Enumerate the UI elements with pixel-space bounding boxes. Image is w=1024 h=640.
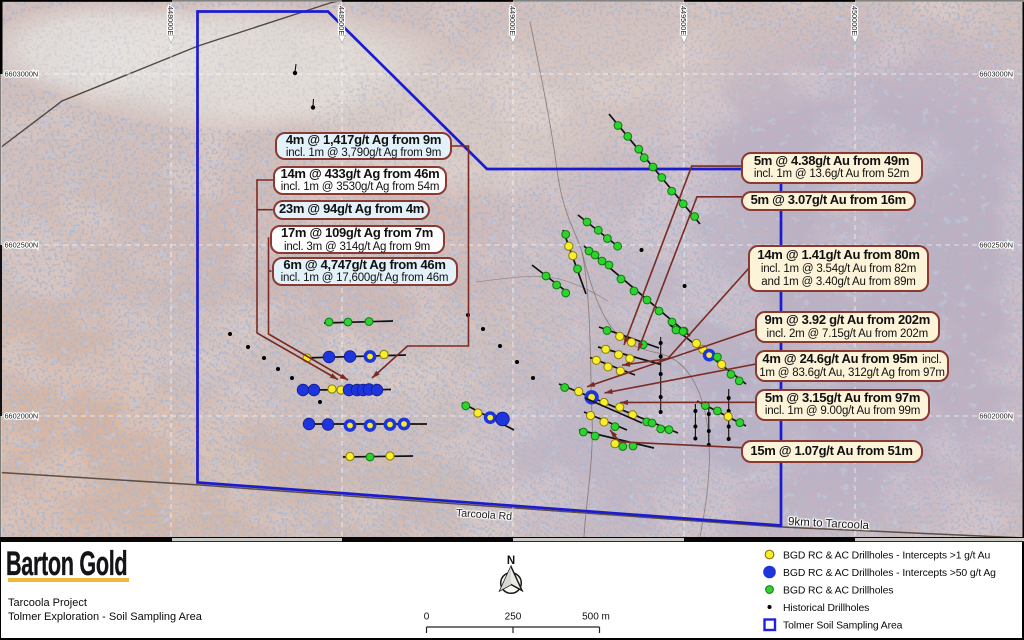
svg-text:6602500N: 6602500N [979, 241, 1013, 250]
svg-text:BGD RC & AC Drillholes - Inter: BGD RC & AC Drillholes - Intercepts >1 g… [783, 551, 990, 562]
svg-text:6602000N: 6602000N [5, 412, 39, 421]
svg-text:6602500N: 6602500N [5, 241, 39, 250]
svg-text:6602000N: 6602000N [979, 412, 1013, 421]
svg-text:6603000N: 6603000N [5, 70, 39, 79]
svg-text:0: 0 [424, 612, 430, 623]
svg-text:Tolmer Soil Sampling Area: Tolmer Soil Sampling Area [783, 621, 903, 632]
svg-text:250: 250 [505, 612, 522, 623]
svg-text:BGD RC & AC Drillholes: BGD RC & AC Drillholes [783, 586, 893, 597]
svg-text:BGD RC & AC Drillholes - Inter: BGD RC & AC Drillholes - Intercepts >50 … [783, 568, 996, 579]
svg-text:Historical Drillholes: Historical Drillholes [783, 603, 869, 614]
svg-text:448500E: 448500E [337, 6, 346, 35]
svg-text:500 m: 500 m [582, 612, 610, 623]
svg-text:6603000N: 6603000N [979, 70, 1013, 79]
svg-text:450000E: 450000E [850, 6, 859, 35]
svg-text:448000E: 448000E [166, 6, 175, 35]
svg-text:449500E: 449500E [679, 6, 688, 35]
svg-text:449000E: 449000E [508, 6, 517, 35]
